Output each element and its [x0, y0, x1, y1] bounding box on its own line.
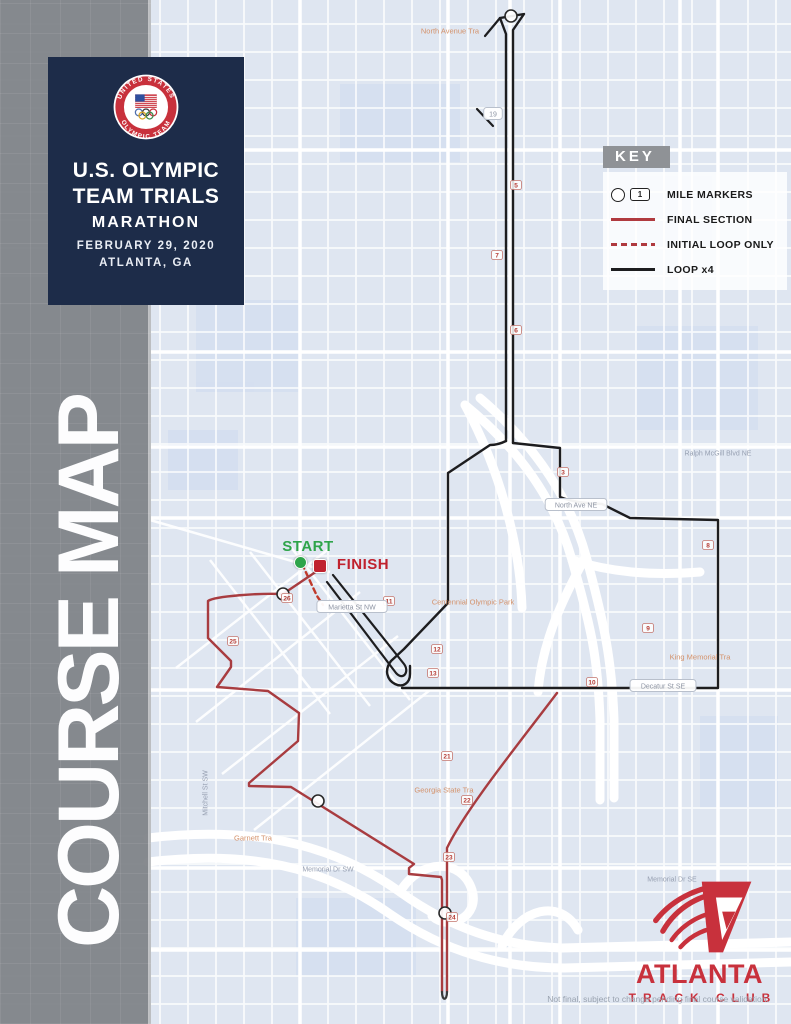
mile-marker-square: 23 [444, 853, 455, 862]
svg-text:Georgia State Tra: Georgia State Tra [414, 786, 474, 795]
street-label: 19 [484, 108, 503, 120]
svg-text:North Avenue Tra: North Avenue Tra [421, 27, 480, 36]
street-label: Mitchell St SW [203, 770, 210, 816]
atc-name: ATLANTA [612, 959, 787, 990]
svg-text:13: 13 [429, 670, 437, 677]
svg-text:Centennial Olympic Park: Centennial Olympic Park [432, 598, 515, 607]
svg-text:10: 10 [588, 679, 596, 686]
mile-marker-circle [312, 795, 324, 807]
street-label: King Memorial Tra [670, 653, 732, 662]
street-label: Marietta St NW [317, 601, 387, 613]
svg-text:22: 22 [463, 797, 471, 804]
initial-loop-dashed-line-icon [611, 243, 667, 246]
key-label: INITIAL LOOP ONLY [667, 239, 774, 251]
svg-text:21: 21 [443, 753, 451, 760]
final-section-line-icon [611, 218, 667, 221]
svg-text:12: 12 [433, 646, 441, 653]
svg-text:Garnett Tra: Garnett Tra [234, 834, 273, 843]
svg-text:Decatur St SE: Decatur St SE [641, 684, 686, 691]
start-label: START [276, 538, 340, 555]
svg-text:26: 26 [283, 595, 291, 602]
key-row-mile-markers: 1 MILE MARKERS [611, 182, 777, 207]
svg-text:North Ave NE: North Ave NE [555, 503, 598, 510]
svg-text:6: 6 [514, 327, 518, 334]
loop-line-icon [611, 268, 667, 271]
street-label: Georgia State Tra [414, 786, 474, 795]
mile-marker-square: 10 [587, 678, 598, 687]
svg-text:7: 7 [495, 252, 499, 259]
atlanta-track-club-logo: ATLANTA TRACK CLUB [612, 876, 787, 1005]
mile-marker-circle [505, 10, 517, 22]
title-line-4: FEBRUARY 29, 2020 [48, 238, 244, 255]
street-label: Centennial Olympic Park [432, 598, 515, 607]
svg-text:3: 3 [561, 469, 565, 476]
key-label: FINAL SECTION [667, 214, 753, 226]
svg-text:8: 8 [706, 542, 710, 549]
svg-text:King Memorial Tra: King Memorial Tra [670, 653, 732, 662]
street-label: North Avenue Tra [421, 27, 480, 36]
street-label: Garnett Tra [234, 834, 273, 843]
title-line-3: MARATHON [48, 212, 244, 234]
svg-text:25: 25 [229, 638, 237, 645]
svg-text:9: 9 [646, 625, 650, 632]
mile-marker-square: 7 [492, 251, 503, 260]
svg-text:19: 19 [489, 112, 497, 119]
key-title: KEY [603, 146, 670, 168]
disclaimer-text: Not final, subject to change pending fin… [525, 994, 791, 1004]
us-flag-icon [135, 94, 157, 108]
mile-marker-square: 6 [511, 326, 522, 335]
finish-marker-dot [313, 559, 327, 573]
mile-marker-square: 8 [703, 541, 714, 550]
svg-text:23: 23 [445, 854, 453, 861]
mile-marker-square: 24 [447, 913, 458, 922]
svg-text:24: 24 [448, 914, 456, 921]
mile-marker-square: 12 [432, 645, 443, 654]
key-row-loop-x4: LOOP x4 [611, 257, 777, 282]
winged-a-icon [638, 876, 762, 958]
key-label: MILE MARKERS [667, 189, 753, 201]
mile-marker-square: 9 [643, 624, 654, 633]
mile-marker-square: 3 [558, 468, 569, 477]
key-body: 1 MILE MARKERS FINAL SECTION INITIAL LOO… [603, 172, 787, 290]
mile-marker-square: 21 [442, 752, 453, 761]
svg-text:Mitchell St SW: Mitchell St SW [203, 770, 210, 816]
key-row-final-section: FINAL SECTION [611, 207, 777, 232]
title-line-5: ATLANTA, GA [48, 255, 244, 272]
street-label: Ralph McGill Blvd NE [685, 451, 752, 458]
mile-marker-square: 22 [462, 796, 473, 805]
title-line-1: U.S. OLYMPIC [48, 158, 244, 184]
title-line-2: TEAM TRIALS [48, 184, 244, 210]
course-map-poster: 56738910111213212223242526 19North Ave N… [0, 0, 791, 1024]
svg-text:Ralph McGill Blvd NE: Ralph McGill Blvd NE [685, 451, 752, 458]
street-label: Memorial Dr SW [302, 867, 354, 874]
start-marker-dot [294, 556, 307, 569]
mile-marker-sample-icon: 1 [611, 188, 667, 202]
key-row-initial-loop: INITIAL LOOP ONLY [611, 232, 777, 257]
mile-marker-square: 26 [282, 594, 293, 603]
svg-text:5: 5 [514, 182, 518, 189]
key-label: LOOP x4 [667, 264, 714, 276]
svg-text:Marietta St NW: Marietta St NW [328, 605, 376, 612]
event-title-card: UNITED STATES OLYMPIC TEAM U.S. OLYMPIC … [48, 57, 244, 305]
mile-marker-square: 13 [428, 669, 439, 678]
street-label: Decatur St SE [630, 680, 696, 692]
map-key-panel: KEY 1 MILE MARKERS FINAL SECTION INITIAL… [603, 146, 787, 290]
mile-marker-square: 5 [511, 181, 522, 190]
course-map-vertical-title: COURSE MAP [34, 308, 146, 948]
svg-text:Memorial Dr SW: Memorial Dr SW [302, 867, 354, 874]
street-label: North Ave NE [545, 499, 607, 511]
us-olympic-team-logo: UNITED STATES OLYMPIC TEAM [110, 71, 182, 143]
finish-label: FINISH [326, 556, 400, 573]
mile-marker-square: 25 [228, 637, 239, 646]
